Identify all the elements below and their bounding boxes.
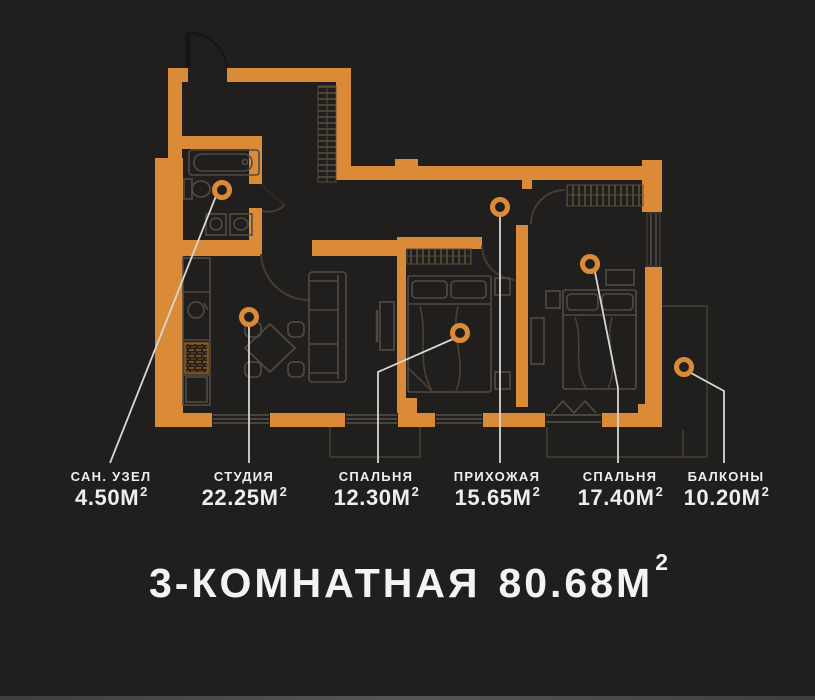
marker-hallway xyxy=(493,200,508,215)
room-area: 4.50М2 xyxy=(71,485,152,510)
kitchen-counter xyxy=(183,258,210,405)
balcony-bottom-right xyxy=(547,427,683,457)
sofa xyxy=(309,272,346,382)
marker-balconies xyxy=(677,360,692,375)
balcony-right xyxy=(662,306,707,457)
kitchen-cabinet xyxy=(186,377,207,402)
nightstand xyxy=(546,291,560,308)
room-name: СТУДИЯ xyxy=(202,469,287,484)
window-right-wall xyxy=(647,213,660,266)
room-area: 17.40М2 xyxy=(578,485,663,510)
marker-studio xyxy=(242,310,257,325)
room-label-bedroom-2: СПАЛЬНЯ 17.40М2 xyxy=(578,469,663,510)
bed-bedroom-1 xyxy=(408,276,491,392)
plan-title: 3-КОМНАТНАЯ80.68М2 xyxy=(0,560,815,607)
balcony-bottom-left xyxy=(330,427,420,457)
stove xyxy=(185,343,208,373)
bathtub xyxy=(189,150,259,175)
room-area: 10.20М2 xyxy=(684,485,769,510)
kitchen-sink xyxy=(188,302,204,318)
bed-bedroom-2 xyxy=(563,290,636,389)
bottom-edge-strip xyxy=(0,696,815,700)
marker-bedroom-1 xyxy=(453,326,468,341)
wardrobe-hall-corridor xyxy=(318,86,336,182)
nightstand xyxy=(495,278,510,295)
entrance-door xyxy=(188,32,227,68)
window-bottom-4 xyxy=(546,401,601,422)
dresser xyxy=(606,270,634,285)
room-name: ПРИХОЖАЯ xyxy=(454,469,541,484)
room-label-balconies: БАЛКОНЫ 10.20М2 xyxy=(684,469,769,510)
toilet xyxy=(184,179,210,199)
wardrobe-bedroom-2 xyxy=(567,185,643,206)
room-name: СПАЛЬНЯ xyxy=(334,469,419,484)
room-label-san-uzel: САН. УЗЕЛ 4.50М2 xyxy=(71,469,152,510)
plan-title-label: 3-КОМНАТНАЯ xyxy=(149,560,480,606)
bathroom-sink xyxy=(230,214,252,235)
washing-machine xyxy=(206,214,226,235)
room-name: САН. УЗЕЛ xyxy=(71,469,152,484)
room-name: СПАЛЬНЯ xyxy=(578,469,663,484)
nightstand xyxy=(495,372,510,389)
desk xyxy=(531,318,544,364)
room-label-bedroom-1: СПАЛЬНЯ 12.30М2 xyxy=(334,469,419,510)
plan-title-value: 80.68 xyxy=(498,560,616,606)
window-bottom-1 xyxy=(213,415,269,423)
room-area: 22.25М2 xyxy=(202,485,287,510)
plan-title-sup: 2 xyxy=(655,549,668,575)
room-area: 12.30М2 xyxy=(334,485,419,510)
room-name: БАЛКОНЫ xyxy=(684,469,769,484)
dining-table xyxy=(245,322,304,377)
floor-plan-page: САН. УЗЕЛ 4.50М2 СТУДИЯ 22.25М2 СПАЛЬНЯ … xyxy=(0,0,815,700)
wardrobe-bedroom-1 xyxy=(407,249,471,264)
room-markers xyxy=(215,183,692,375)
window-bottom-3 xyxy=(436,415,482,423)
marker-san-uzel xyxy=(215,183,230,198)
tv-console xyxy=(377,302,394,350)
plan-title-unit: М xyxy=(616,560,653,606)
marker-bedroom-2 xyxy=(583,257,598,272)
room-area: 15.65М2 xyxy=(454,485,541,510)
room-label-hallway: ПРИХОЖАЯ 15.65М2 xyxy=(454,469,541,510)
window-bottom-2 xyxy=(346,415,397,423)
room-label-studio: СТУДИЯ 22.25М2 xyxy=(202,469,287,510)
